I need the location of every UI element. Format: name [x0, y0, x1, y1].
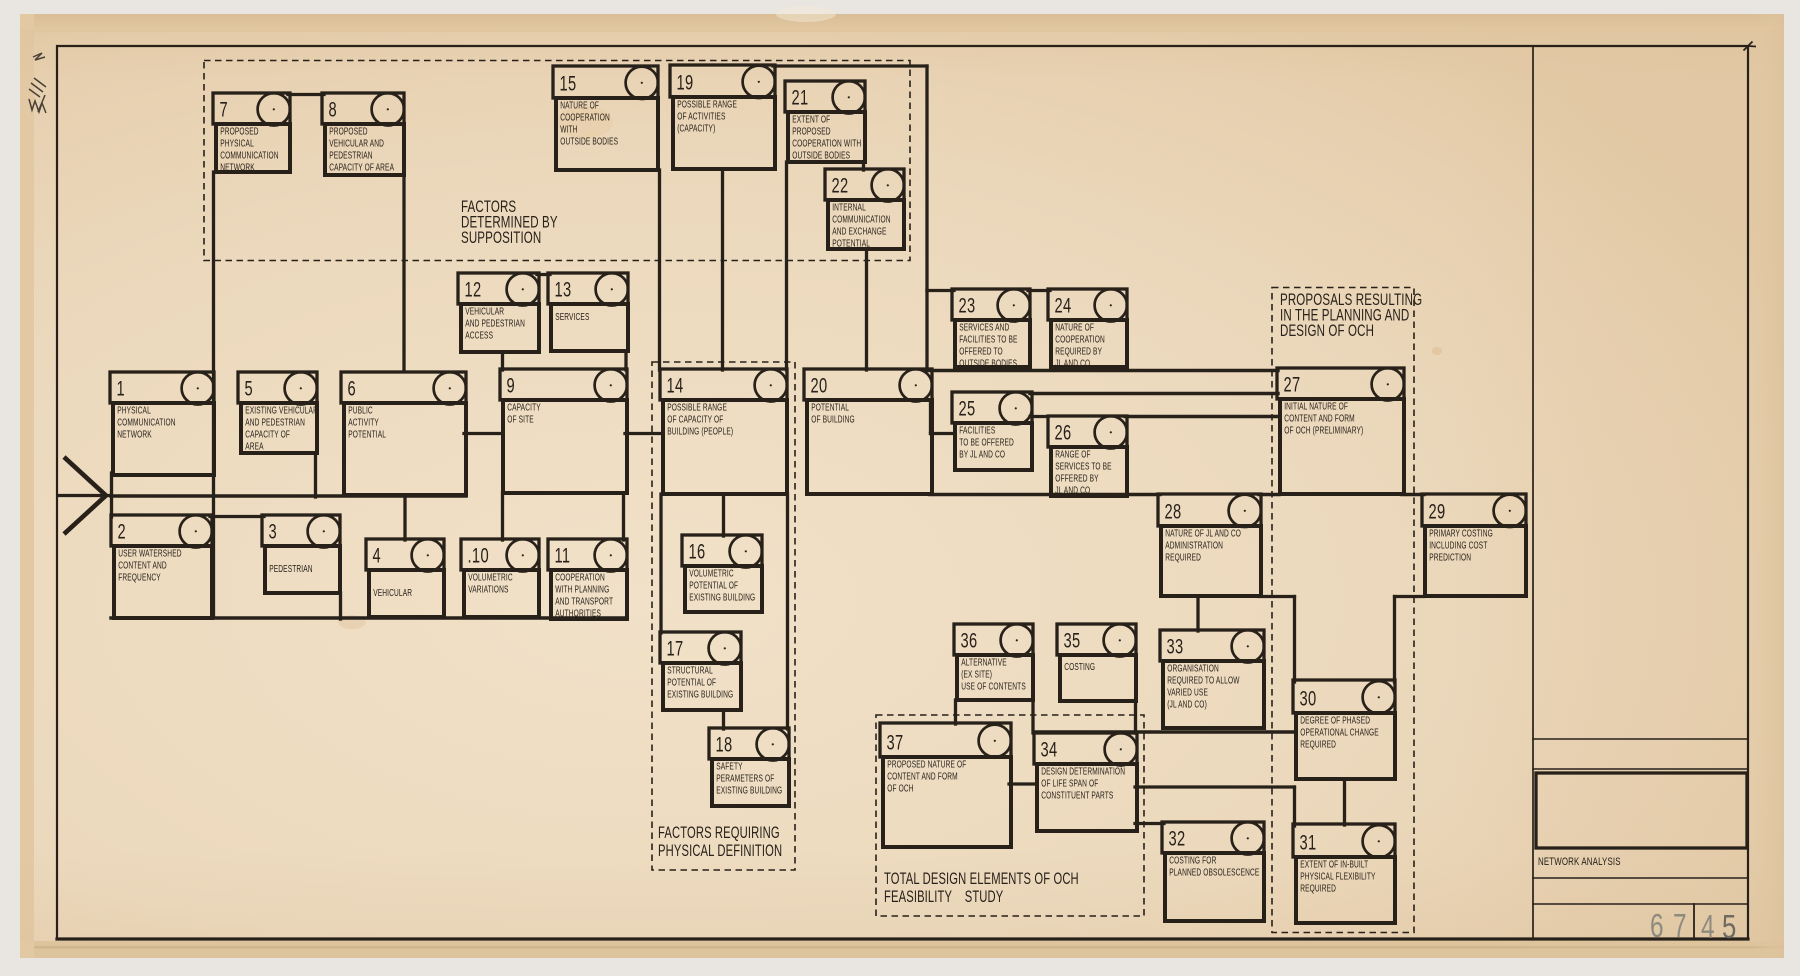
- svg-text:OF LIFE SPAN OF: OF LIFE SPAN OF: [1041, 777, 1098, 789]
- svg-text:2: 2: [118, 520, 127, 543]
- svg-text:7: 7: [1673, 909, 1687, 945]
- svg-text:REQUIRED BY: REQUIRED BY: [1055, 345, 1102, 357]
- svg-text:34: 34: [1041, 738, 1058, 761]
- svg-text:OF ACTIVITIES: OF ACTIVITIES: [677, 110, 725, 122]
- svg-text:VEHICULAR: VEHICULAR: [465, 305, 504, 317]
- svg-text:POTENTIAL: POTENTIAL: [348, 428, 386, 440]
- svg-text:9: 9: [507, 374, 516, 397]
- svg-text:23: 23: [959, 294, 976, 317]
- svg-text:5: 5: [1722, 909, 1736, 946]
- svg-text:FACILITIES: FACILITIES: [959, 424, 995, 436]
- svg-text:PEDESTRIAN: PEDESTRIAN: [269, 563, 312, 575]
- svg-text:(EX SITE): (EX SITE): [961, 668, 992, 680]
- svg-text:CONTENT AND: CONTENT AND: [118, 559, 167, 571]
- svg-text:DEGREE OF PHASED: DEGREE OF PHASED: [1300, 714, 1370, 726]
- svg-text:ALTERNATIVE: ALTERNATIVE: [961, 656, 1007, 668]
- svg-text:SAFETY: SAFETY: [716, 760, 743, 772]
- svg-text:NATURE OF: NATURE OF: [560, 99, 599, 111]
- svg-text:OF SITE: OF SITE: [507, 413, 534, 425]
- svg-text:CAPACITY OF AREA: CAPACITY OF AREA: [329, 161, 394, 173]
- svg-text:35: 35: [1064, 629, 1081, 652]
- svg-text:30: 30: [1300, 687, 1317, 710]
- svg-text:18: 18: [716, 733, 733, 756]
- svg-text:33: 33: [1167, 635, 1184, 658]
- svg-text:USE OF CONTENTS: USE OF CONTENTS: [961, 680, 1026, 692]
- svg-text:TO BE OFFERED: TO BE OFFERED: [959, 436, 1014, 448]
- svg-text:TOTAL DESIGN ELEMENTS OF OCH: TOTAL DESIGN ELEMENTS OF OCH: [884, 869, 1079, 888]
- svg-text:EXISTING VEHICULAR: EXISTING VEHICULAR: [245, 404, 318, 416]
- svg-text:PHYSICAL: PHYSICAL: [220, 137, 254, 149]
- svg-text:15: 15: [560, 72, 577, 95]
- svg-text:COSTING: COSTING: [1064, 661, 1095, 673]
- svg-text:OUTSIDE BODIES: OUTSIDE BODIES: [792, 149, 850, 161]
- svg-text:6: 6: [1650, 909, 1664, 945]
- svg-text:11: 11: [555, 544, 571, 567]
- svg-text:COOPERATION: COOPERATION: [555, 571, 605, 583]
- svg-text:(CAPACITY): (CAPACITY): [677, 122, 715, 134]
- svg-text:CONTENT AND FORM: CONTENT AND FORM: [887, 770, 958, 782]
- svg-text:ACCESS: ACCESS: [465, 329, 493, 341]
- svg-text:USER WATERSHED: USER WATERSHED: [118, 547, 181, 559]
- svg-text:NATURE OF: NATURE OF: [1055, 321, 1094, 333]
- svg-text:DESIGN OF OCH: DESIGN OF OCH: [1280, 322, 1374, 341]
- svg-text:13: 13: [555, 278, 572, 301]
- svg-text:COSTING FOR: COSTING FOR: [1169, 854, 1216, 866]
- svg-text:EXTENT OF IN-BUILT: EXTENT OF IN-BUILT: [1300, 858, 1368, 870]
- svg-text:REQUIRED: REQUIRED: [1300, 882, 1336, 894]
- svg-text:FREQUENCY: FREQUENCY: [118, 571, 161, 583]
- svg-text:PHYSICAL: PHYSICAL: [117, 404, 151, 416]
- svg-text:REQUIRED TO ALLOW: REQUIRED TO ALLOW: [1167, 674, 1239, 686]
- svg-text:21: 21: [792, 86, 809, 109]
- svg-text:POSSIBLE RANGE: POSSIBLE RANGE: [677, 98, 737, 110]
- svg-text:EXTENT OF: EXTENT OF: [792, 113, 830, 125]
- svg-text:INTERNAL: INTERNAL: [832, 201, 866, 213]
- svg-text:28: 28: [1165, 500, 1182, 523]
- svg-text:ADMINISTRATION: ADMINISTRATION: [1165, 539, 1223, 551]
- svg-text:STRUCTURAL: STRUCTURAL: [667, 664, 713, 676]
- svg-text:COOPERATION: COOPERATION: [560, 111, 610, 123]
- svg-text:8: 8: [329, 98, 338, 121]
- svg-text:DESIGN DETERMINATION: DESIGN DETERMINATION: [1041, 765, 1125, 777]
- svg-text:BY JL AND CO: BY JL AND CO: [959, 448, 1005, 460]
- svg-text:POTENTIAL OF: POTENTIAL OF: [689, 579, 738, 591]
- svg-text:7: 7: [220, 98, 229, 121]
- svg-text:VEHICULAR: VEHICULAR: [373, 587, 412, 599]
- svg-text:PLANNED OBSOLESCENCE: PLANNED OBSOLESCENCE: [1169, 866, 1259, 878]
- svg-text:POTENTIAL OF: POTENTIAL OF: [667, 676, 716, 688]
- svg-text:16: 16: [689, 540, 706, 563]
- svg-text:WITH: WITH: [560, 123, 577, 135]
- svg-text:SUPPOSITION: SUPPOSITION: [461, 229, 541, 248]
- svg-text:OUTSIDE BODIES: OUTSIDE BODIES: [560, 135, 618, 147]
- svg-text:OUTSIDE BODIES: OUTSIDE BODIES: [959, 357, 1017, 369]
- svg-text:AND PEDESTRIAN: AND PEDESTRIAN: [245, 416, 305, 428]
- svg-text:EXISTING BUILDING: EXISTING BUILDING: [716, 784, 782, 796]
- svg-text:VEHICULAR AND: VEHICULAR AND: [329, 137, 384, 149]
- svg-text:CAPACITY: CAPACITY: [507, 401, 541, 413]
- svg-text:12: 12: [465, 278, 482, 301]
- svg-text:14: 14: [667, 374, 684, 397]
- svg-text:25: 25: [959, 397, 976, 420]
- svg-text:3: 3: [269, 520, 278, 543]
- svg-text:COMMUNICATION: COMMUNICATION: [117, 416, 175, 428]
- svg-text:CONTENT AND FORM: CONTENT AND FORM: [1284, 412, 1355, 424]
- svg-text:FACTORS REQUIRING: FACTORS REQUIRING: [658, 823, 780, 842]
- svg-text:INCLUDING COST: INCLUDING COST: [1429, 539, 1487, 551]
- svg-text:PUBLIC: PUBLIC: [348, 404, 373, 416]
- svg-text:(JL AND CO): (JL AND CO): [1167, 698, 1207, 710]
- svg-text:AND TRANSPORT: AND TRANSPORT: [555, 595, 613, 607]
- svg-text:31: 31: [1300, 831, 1317, 854]
- svg-text:NETWORK: NETWORK: [220, 161, 255, 173]
- svg-text:NATURE OF JL AND CO: NATURE OF JL AND CO: [1165, 527, 1241, 539]
- svg-text:AND PEDESTRIAN: AND PEDESTRIAN: [465, 317, 525, 329]
- svg-text:COMMUNICATION: COMMUNICATION: [832, 213, 890, 225]
- svg-text:PROPOSED: PROPOSED: [220, 125, 258, 137]
- svg-text:OFFERED BY: OFFERED BY: [1055, 472, 1099, 484]
- svg-text:22: 22: [832, 174, 849, 197]
- svg-text:BUILDING (PEOPLE): BUILDING (PEOPLE): [667, 425, 733, 437]
- svg-text:REQUIRED: REQUIRED: [1165, 551, 1201, 563]
- svg-text:PRIMARY COSTING: PRIMARY COSTING: [1429, 527, 1493, 539]
- svg-text:PROPOSED: PROPOSED: [792, 125, 830, 137]
- svg-text:OPERATIONAL CHANGE: OPERATIONAL CHANGE: [1300, 726, 1379, 738]
- svg-text:.10: .10: [468, 544, 489, 567]
- svg-text:OF BUILDING: OF BUILDING: [811, 413, 855, 425]
- svg-text:INITIAL NATURE OF: INITIAL NATURE OF: [1284, 400, 1348, 412]
- svg-text:NETWORK: NETWORK: [117, 428, 152, 440]
- svg-text:RANGE OF: RANGE OF: [1055, 448, 1091, 460]
- svg-text:VOLUMETRIC: VOLUMETRIC: [689, 567, 734, 579]
- svg-text:VOLUMETRIC: VOLUMETRIC: [468, 571, 513, 583]
- svg-text:AND EXCHANGE: AND EXCHANGE: [832, 225, 887, 237]
- svg-text:VARIED USE: VARIED USE: [1167, 686, 1208, 698]
- svg-text:4: 4: [1701, 910, 1715, 946]
- svg-text:EXISTING BUILDING: EXISTING BUILDING: [689, 591, 755, 603]
- svg-text:24: 24: [1055, 294, 1072, 317]
- svg-text:ACTIVITY: ACTIVITY: [348, 416, 379, 428]
- svg-text:COOPERATION WITH: COOPERATION WITH: [792, 137, 861, 149]
- svg-text:AREA: AREA: [245, 440, 264, 452]
- svg-text:POTENTIAL: POTENTIAL: [832, 237, 870, 249]
- svg-text:17: 17: [667, 637, 684, 660]
- svg-text:19: 19: [677, 71, 694, 94]
- svg-text:POTENTIAL: POTENTIAL: [811, 401, 849, 413]
- svg-text:PROPOSED NATURE OF: PROPOSED NATURE OF: [887, 758, 966, 770]
- svg-text:5: 5: [245, 377, 254, 400]
- svg-text:26: 26: [1055, 421, 1072, 444]
- svg-text:SERVICES TO BE: SERVICES TO BE: [1055, 460, 1112, 472]
- svg-text:37: 37: [887, 731, 904, 754]
- svg-text:1: 1: [117, 377, 126, 400]
- svg-text:JL AND CO: JL AND CO: [1055, 484, 1090, 496]
- svg-text:VARIATIONS: VARIATIONS: [468, 583, 508, 595]
- svg-text:FACILITIES TO BE: FACILITIES TO BE: [959, 333, 1017, 345]
- svg-text:CAPACITY OF: CAPACITY OF: [245, 428, 290, 440]
- svg-text:NETWORK ANALYSIS: NETWORK ANALYSIS: [1538, 856, 1621, 869]
- svg-text:PREDICTION: PREDICTION: [1429, 551, 1471, 563]
- svg-text:36: 36: [961, 629, 978, 652]
- svg-text:27: 27: [1284, 373, 1301, 396]
- svg-text:6: 6: [348, 377, 357, 400]
- svg-text:SERVICES: SERVICES: [555, 311, 589, 323]
- svg-text:OF CAPACITY OF: OF CAPACITY OF: [667, 413, 723, 425]
- svg-text:20: 20: [811, 374, 828, 397]
- svg-text:OF OCH (PRELIMINARY): OF OCH (PRELIMINARY): [1284, 424, 1363, 436]
- svg-text:COMMUNICATION: COMMUNICATION: [220, 149, 278, 161]
- svg-text:PROPOSED: PROPOSED: [329, 125, 367, 137]
- svg-text:4: 4: [373, 544, 382, 567]
- svg-text:SERVICES AND: SERVICES AND: [959, 321, 1009, 333]
- svg-text:ORGANISATION: ORGANISATION: [1167, 662, 1219, 674]
- svg-text:32: 32: [1169, 827, 1186, 850]
- svg-text:CONSTITUENT PARTS: CONSTITUENT PARTS: [1041, 789, 1113, 801]
- svg-text:PERAMETERS OF: PERAMETERS OF: [716, 772, 774, 784]
- svg-text:JL AND CO: JL AND CO: [1055, 357, 1090, 369]
- svg-text:WITH PLANNING: WITH PLANNING: [555, 583, 609, 595]
- svg-text:COOPERATION: COOPERATION: [1055, 333, 1105, 345]
- svg-text:REQUIRED: REQUIRED: [1300, 738, 1336, 750]
- svg-text:FEASIBILITY STUDY: FEASIBILITY STUDY: [884, 887, 1004, 906]
- svg-text:29: 29: [1429, 500, 1446, 523]
- svg-text:PEDESTRIAN: PEDESTRIAN: [329, 149, 372, 161]
- svg-text:POSSIBLE RANGE: POSSIBLE RANGE: [667, 401, 727, 413]
- svg-text:PHYSICAL FLEXIBILITY: PHYSICAL FLEXIBILITY: [1300, 870, 1375, 882]
- svg-text:AUTHORITIES: AUTHORITIES: [555, 607, 601, 619]
- svg-text:PHYSICAL DEFINITION: PHYSICAL DEFINITION: [658, 841, 782, 860]
- svg-text:OF OCH: OF OCH: [887, 782, 913, 794]
- svg-text:OFFERED TO: OFFERED TO: [959, 345, 1003, 357]
- svg-text:EXISTING BUILDING: EXISTING BUILDING: [667, 688, 733, 700]
